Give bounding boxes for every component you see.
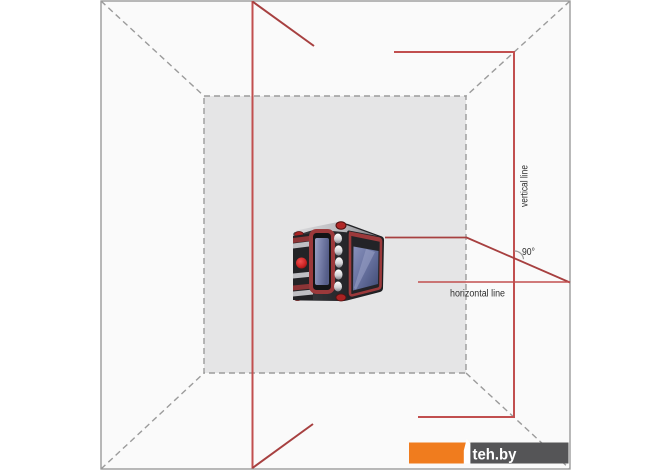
svg-text:vertical line: vertical line — [520, 165, 531, 207]
svg-text:horizontal line: horizontal line — [450, 289, 505, 300]
svg-text:90°: 90° — [522, 247, 535, 258]
svg-text:teh.by: teh.by — [473, 447, 517, 464]
